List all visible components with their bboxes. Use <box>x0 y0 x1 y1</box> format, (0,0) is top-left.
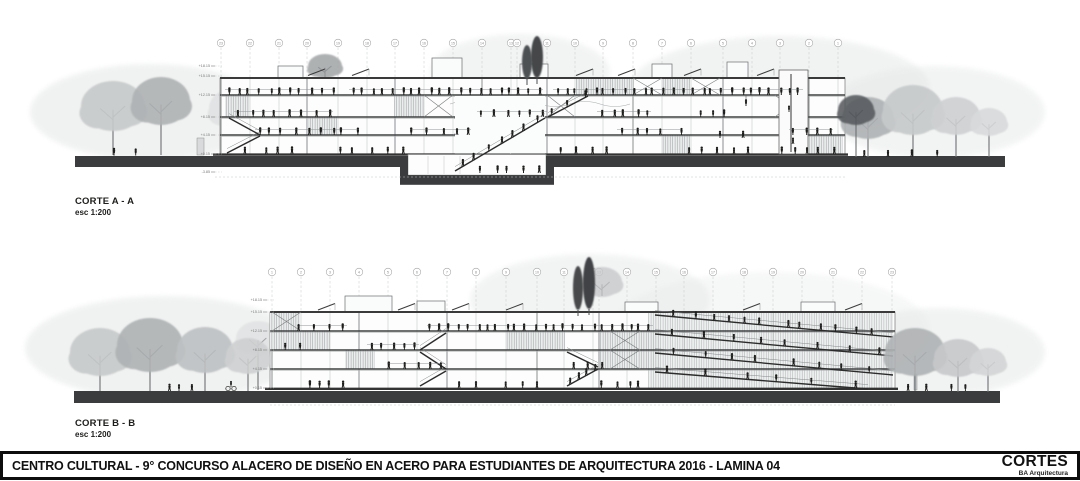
svg-text:1: 1 <box>271 270 273 274</box>
svg-text:20: 20 <box>305 41 309 45</box>
svg-text:8: 8 <box>632 41 634 45</box>
svg-text:-3.85: -3.85 <box>202 170 210 174</box>
svg-text:4: 4 <box>358 270 360 274</box>
section-a-title: CORTE A - A <box>75 196 134 208</box>
svg-text:10: 10 <box>535 270 539 274</box>
svg-text:+8.15: +8.15 <box>253 348 262 352</box>
svg-text:16: 16 <box>682 270 686 274</box>
svg-text:19: 19 <box>336 41 340 45</box>
svg-text:15: 15 <box>654 270 658 274</box>
section-b-title: CORTE B - B <box>75 418 135 430</box>
svg-text:21: 21 <box>277 41 281 45</box>
svg-text:14: 14 <box>480 41 484 45</box>
svg-text:+18.15: +18.15 <box>251 298 262 302</box>
svg-text:+15.15: +15.15 <box>251 310 262 314</box>
section-b-scale: esc 1:200 <box>75 430 135 440</box>
svg-text:6: 6 <box>416 270 418 274</box>
project-title: CENTRO CULTURAL - 9° CONCURSO ALACERO DE… <box>12 459 780 473</box>
svg-text:16: 16 <box>422 41 426 45</box>
svg-text:18: 18 <box>742 270 746 274</box>
svg-text:15: 15 <box>451 41 455 45</box>
svg-text:23: 23 <box>219 41 223 45</box>
svg-text:9: 9 <box>602 41 604 45</box>
svg-text:21: 21 <box>831 270 835 274</box>
sheet-name: CORTES <box>1002 454 1068 470</box>
section-a-label: CORTE A - A esc 1:200 <box>75 196 134 217</box>
corte-b-drawing: 1234567891011121314151617181920212223+18… <box>25 254 1045 405</box>
svg-text:9: 9 <box>505 270 507 274</box>
svg-text:2: 2 <box>300 270 302 274</box>
title-block: CENTRO CULTURAL - 9° CONCURSO ALACERO DE… <box>0 451 1080 480</box>
svg-text:2: 2 <box>808 41 810 45</box>
section-a-scale: esc 1:200 <box>75 208 134 218</box>
svg-text:17: 17 <box>393 41 397 45</box>
svg-text:20: 20 <box>800 270 804 274</box>
svg-text:22: 22 <box>860 270 864 274</box>
svg-text:6: 6 <box>690 41 692 45</box>
studio-name: BA Arquitectura <box>1002 471 1068 478</box>
svg-text:+0.15: +0.15 <box>253 386 262 390</box>
svg-text:1: 1 <box>837 41 839 45</box>
svg-text:3: 3 <box>779 41 781 45</box>
svg-text:+0.15: +0.15 <box>201 152 210 156</box>
svg-text:+12.15: +12.15 <box>199 93 210 97</box>
architecture-sheet: 2322212019181716151413121110987654321+18… <box>0 0 1080 481</box>
svg-text:+15.15: +15.15 <box>199 74 210 78</box>
svg-text:7: 7 <box>661 41 663 45</box>
svg-text:22: 22 <box>248 41 252 45</box>
svg-text:8: 8 <box>475 270 477 274</box>
svg-text:+18.15: +18.15 <box>199 64 210 68</box>
svg-text:12: 12 <box>515 41 519 45</box>
svg-text:11: 11 <box>562 270 566 274</box>
svg-text:3: 3 <box>329 270 331 274</box>
svg-text:+12.15: +12.15 <box>251 329 262 333</box>
svg-text:5: 5 <box>387 270 389 274</box>
svg-text:13: 13 <box>509 41 513 45</box>
section-b-label: CORTE B - B esc 1:200 <box>75 418 135 439</box>
title-block-right: CORTES BA Arquitectura <box>1002 454 1068 477</box>
svg-text:23: 23 <box>890 270 894 274</box>
svg-text:+4.15: +4.15 <box>201 133 210 137</box>
svg-text:+4.15: +4.15 <box>253 367 262 371</box>
corte-a-drawing: 2322212019181716151413121110987654321+18… <box>30 34 1045 185</box>
svg-text:+8.15: +8.15 <box>201 115 210 119</box>
svg-text:4: 4 <box>751 41 753 45</box>
svg-text:17: 17 <box>711 270 715 274</box>
sections-canvas: 2322212019181716151413121110987654321+18… <box>0 0 1080 452</box>
svg-text:7: 7 <box>446 270 448 274</box>
svg-text:18: 18 <box>365 41 369 45</box>
svg-text:5: 5 <box>722 41 724 45</box>
svg-text:10: 10 <box>573 41 577 45</box>
svg-text:19: 19 <box>771 270 775 274</box>
svg-text:11: 11 <box>545 41 549 45</box>
svg-text:14: 14 <box>625 270 629 274</box>
